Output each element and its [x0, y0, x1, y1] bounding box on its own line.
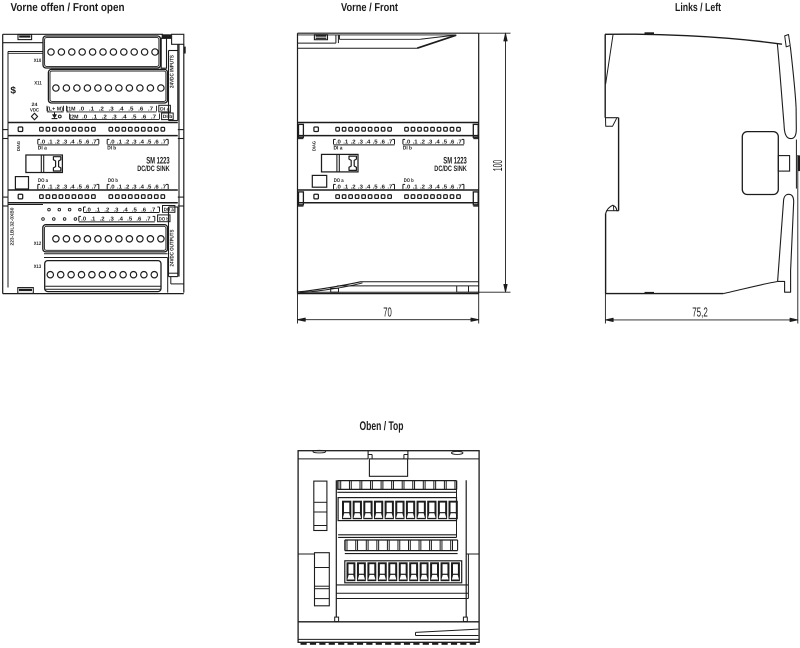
svg-text:.3: .3	[114, 207, 119, 213]
svg-text:70: 70	[383, 305, 392, 320]
svg-text:.3: .3	[109, 217, 114, 223]
svg-text:.0: .0	[86, 207, 91, 213]
svg-text:.3: .3	[358, 140, 363, 146]
svg-text:.2: .2	[420, 140, 425, 146]
svg-text:X13: X13	[34, 264, 42, 270]
svg-text:.2: .2	[55, 140, 60, 146]
svg-text:.6: .6	[136, 217, 141, 223]
svg-text:.5: .5	[127, 217, 132, 223]
svg-text:DO b: DO b	[108, 178, 118, 184]
svg-text:.6: .6	[380, 140, 385, 146]
svg-text:100: 100	[490, 160, 505, 172]
svg-text:24VDC OUTPUTS: 24VDC OUTPUTS	[169, 229, 175, 266]
svg-text:DO a: DO a	[38, 178, 48, 184]
svg-text:DO b: DO b	[404, 178, 414, 184]
svg-text:Links / Left: Links / Left	[675, 2, 721, 14]
svg-text:Vorne / Front: Vorne / Front	[341, 2, 398, 14]
svg-text:.1: .1	[95, 207, 100, 213]
svg-text:.7: .7	[161, 140, 166, 146]
svg-text:.0: .0	[81, 217, 86, 223]
svg-text:.5: .5	[442, 140, 447, 146]
svg-text:.6: .6	[154, 140, 159, 146]
svg-text:X10: X10	[34, 58, 42, 64]
svg-text:Vorne offen / Front open: Vorne offen / Front open	[11, 2, 125, 14]
svg-text:.5: .5	[132, 207, 137, 213]
svg-text:DIAG: DIAG	[16, 140, 21, 151]
svg-text:.5: .5	[373, 140, 378, 146]
svg-text:.6: .6	[449, 140, 454, 146]
svg-text:.1: .1	[117, 140, 122, 146]
svg-text:.3: .3	[62, 140, 67, 146]
svg-text:X12: X12	[34, 241, 42, 247]
svg-text:DO b: DO b	[159, 216, 169, 222]
svg-text:DI b: DI b	[163, 114, 173, 120]
svg-text:.1: .1	[90, 217, 95, 223]
svg-text:24VDC INPUTS: 24VDC INPUTS	[169, 55, 175, 88]
svg-text:DI a: DI a	[160, 107, 170, 113]
svg-text:24: 24	[32, 102, 38, 108]
svg-text:DC/DC SINK: DC/DC SINK	[137, 164, 170, 173]
svg-text:.1: .1	[48, 140, 53, 146]
svg-text:.5: .5	[77, 140, 82, 146]
svg-text:.7: .7	[146, 217, 151, 223]
svg-text:DI a: DI a	[334, 146, 343, 152]
svg-text:DIAG: DIAG	[312, 140, 317, 151]
svg-text:.3: .3	[132, 140, 137, 146]
svg-text:.7: .7	[92, 140, 97, 146]
svg-text:DI b: DI b	[403, 146, 412, 152]
svg-text:.7: .7	[457, 140, 462, 146]
svg-text:DO a: DO a	[334, 178, 344, 184]
svg-text:VDC: VDC	[30, 108, 39, 114]
svg-text:DC/DC SINK: DC/DC SINK	[434, 164, 467, 173]
svg-text:$: $	[10, 85, 16, 96]
svg-text:DI b: DI b	[107, 146, 116, 152]
svg-text:.2: .2	[124, 140, 129, 146]
svg-text:223-1BL32-0XB0: 223-1BL32-0XB0	[10, 207, 15, 245]
svg-text:.3: .3	[427, 140, 432, 146]
svg-text:Oben / Top: Oben / Top	[360, 419, 404, 433]
svg-text:.7: .7	[150, 207, 155, 213]
svg-text:75,2: 75,2	[692, 305, 708, 320]
svg-text:X11: X11	[34, 81, 42, 87]
svg-text:.6: .6	[141, 207, 146, 213]
svg-text:.2: .2	[100, 217, 105, 223]
svg-text:.1: .1	[343, 140, 348, 146]
svg-text:DI a: DI a	[38, 146, 47, 152]
svg-text:.6: .6	[84, 140, 89, 146]
svg-text:.7: .7	[387, 140, 392, 146]
svg-text:.1: .1	[413, 140, 418, 146]
svg-text:.2: .2	[104, 207, 109, 213]
svg-text:.2: .2	[351, 140, 356, 146]
svg-text:.5: .5	[146, 140, 151, 146]
